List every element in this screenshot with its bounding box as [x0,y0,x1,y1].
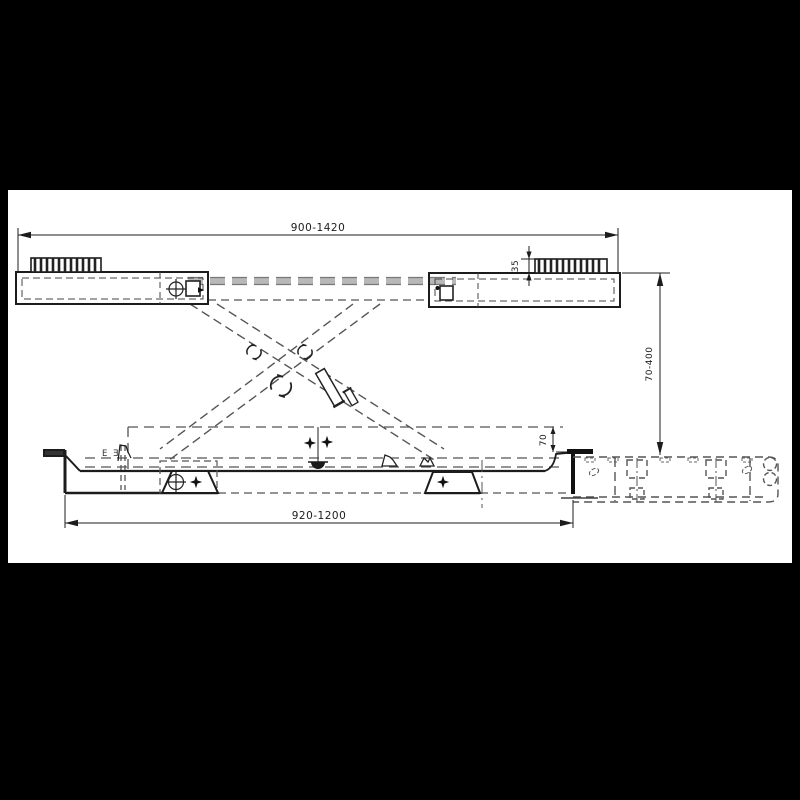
right-platform [429,259,620,307]
dim-label-pad-height: 35 [511,260,521,272]
dim-label-lift-height: 70-400 [645,347,655,382]
dim-label-channel-height: 70 [539,434,549,446]
pivot-rotation-icon [247,344,261,359]
dim-channel-height: 70 [539,427,567,452]
base-hook-left [44,450,64,456]
dim-lift-height: 70-400 [622,273,670,455]
pivot-rotation-icon-center [271,375,291,397]
dim-label-base-length: 920-1200 [292,510,347,522]
ribbed-rubber-pad-right [535,259,607,273]
base-channel-right-hidden [573,457,778,502]
slide-extension-band [188,278,456,301]
support-pad-right [425,472,480,493]
centre-lock-detail [304,427,333,469]
grease-cup-icon [308,462,328,469]
clip-marks: E Ǝ [102,449,120,459]
scissor-arms-hidden [160,304,444,461]
star-marker-icon [321,436,333,448]
left-platform [16,258,208,304]
ribbed-rubber-pad-left [31,258,101,272]
lowered-frame-hidden-lines [85,427,565,490]
pivot-rotation-icons [247,344,312,397]
dim-label-platform-length: 900-1420 [291,222,346,234]
dim-base-length: 920-1200 [65,495,573,528]
base-upstand-cap [567,449,593,454]
base-rail: E Ǝ [44,445,598,498]
drawing-canvas: E Ǝ [0,0,800,800]
arm-feet [382,455,434,466]
scissor-lift-drawing: E Ǝ [8,190,792,563]
drawing-sheet: E Ǝ [8,190,792,563]
star-marker-icon [304,437,316,449]
dim-platform-length: 900-1420 [18,222,618,273]
